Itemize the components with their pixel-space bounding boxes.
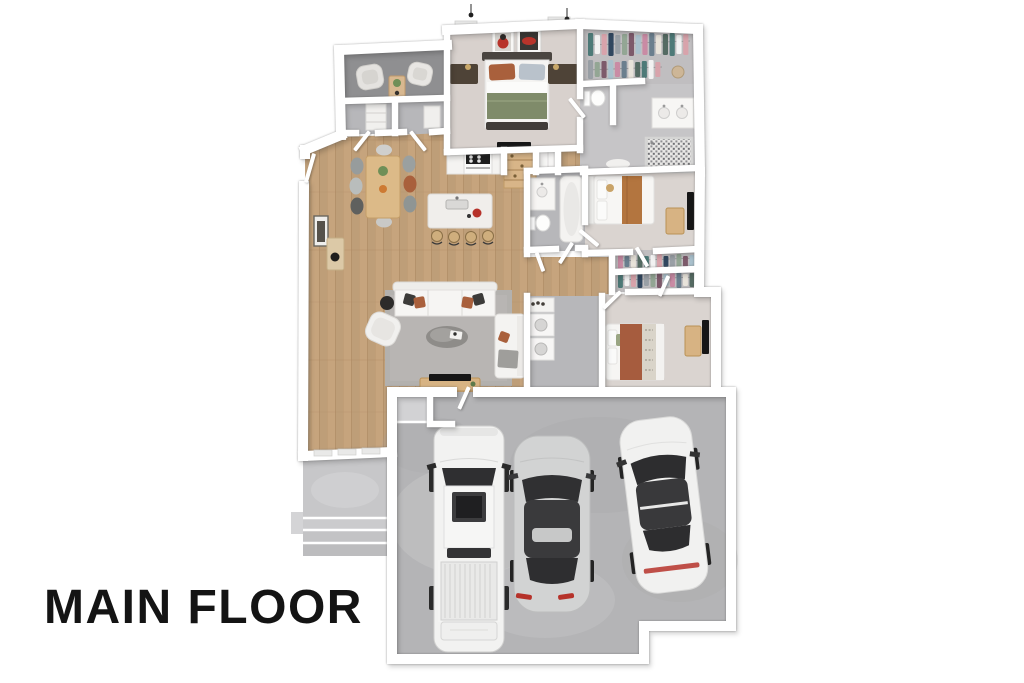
- nightstand: [450, 64, 478, 84]
- wall: [341, 131, 447, 133]
- rust-duvet: [620, 324, 642, 380]
- side-stoop: [291, 512, 303, 534]
- bar-stool: [449, 232, 460, 243]
- plant-centerpiece: [378, 166, 388, 176]
- pillow: [519, 64, 546, 81]
- toilet: [584, 90, 605, 106]
- gray-throw: [497, 349, 518, 368]
- fruit-bowl: [379, 185, 387, 193]
- basket: [672, 66, 684, 78]
- dresser: [666, 208, 684, 234]
- red-bowl: [473, 209, 482, 218]
- dining-chair: [403, 156, 416, 173]
- headboard: [588, 176, 594, 224]
- rear-window: [526, 558, 578, 584]
- throw-pillow: [413, 296, 426, 309]
- wall: [580, 24, 698, 29]
- dresser: [685, 326, 701, 356]
- coffee-table: [426, 326, 468, 348]
- pillow: [489, 63, 516, 80]
- lamp: [465, 64, 471, 70]
- window: [314, 450, 332, 456]
- bed-foot: [656, 324, 664, 380]
- island-sink: [446, 200, 468, 209]
- pillow: [597, 201, 607, 220]
- pillow: [608, 330, 617, 346]
- range: [464, 152, 492, 174]
- sectional-sofa: [393, 282, 497, 316]
- silver-sedan: [508, 436, 597, 612]
- camel-blanket: [622, 176, 642, 224]
- faucet: [455, 196, 458, 199]
- closet-storage: [424, 106, 440, 128]
- tv: [429, 374, 471, 381]
- dining-chair: [351, 198, 364, 215]
- bar-stool: [432, 231, 443, 242]
- office-armchair: [355, 63, 385, 91]
- sage-duvet: [487, 93, 547, 119]
- kitchen-island: [428, 194, 492, 228]
- floor-title: MAIN FLOOR: [44, 584, 363, 632]
- throw-pillow: [461, 296, 474, 309]
- wall-tv: [702, 320, 709, 354]
- dining-chair: [351, 158, 364, 175]
- pillow: [597, 180, 607, 199]
- wall: [303, 186, 304, 456]
- bedroom3-bed: [600, 324, 664, 380]
- wall: [340, 45, 447, 50]
- plant: [393, 79, 401, 87]
- living-room: [362, 282, 525, 391]
- lamp: [553, 64, 559, 70]
- porch-steps: [291, 512, 391, 556]
- pickup-truck: [427, 426, 512, 652]
- closet-shelf-unit: [366, 104, 386, 130]
- rear-window: [447, 548, 491, 558]
- porch-mottle: [311, 472, 379, 508]
- toilet: [529, 215, 550, 231]
- round-side-table: [380, 296, 394, 310]
- floor-plan-page: MAIN FLOOR: [0, 0, 1024, 683]
- garage-entry-step: [394, 394, 428, 422]
- decor-item: [395, 91, 399, 95]
- wall-tv: [687, 192, 694, 230]
- wall: [614, 269, 698, 272]
- decor: [606, 184, 614, 192]
- dining-chair: [350, 178, 363, 195]
- wall: [583, 168, 698, 172]
- wall: [628, 291, 716, 292]
- shower-drain: [650, 141, 653, 144]
- vase: [331, 253, 340, 262]
- master-bed: [482, 52, 552, 130]
- sheet-fold: [487, 82, 547, 93]
- bed-frame-foot: [486, 122, 548, 130]
- window: [338, 449, 356, 455]
- roof-panel: [532, 528, 572, 542]
- pillow: [608, 348, 617, 364]
- sink: [677, 108, 688, 119]
- double-vanity: [652, 98, 694, 128]
- truck-bed: [441, 562, 497, 620]
- wall: [339, 50, 341, 135]
- windshield: [442, 468, 496, 486]
- tailgate: [441, 622, 497, 640]
- clothes-rack: [588, 33, 688, 56]
- patterned-runner: [642, 324, 656, 380]
- wall: [527, 248, 585, 250]
- pendant-light: [469, 13, 474, 18]
- chaise-loveseat: [495, 314, 525, 378]
- bar-stool: [466, 232, 477, 243]
- sink: [659, 108, 670, 119]
- dining-chair: [376, 145, 392, 156]
- wall-art-cat: [492, 30, 514, 54]
- window: [362, 448, 380, 454]
- wall: [699, 172, 700, 292]
- wall: [698, 29, 700, 172]
- bar-stool: [483, 231, 494, 242]
- plant: [471, 382, 476, 387]
- windshield: [522, 475, 582, 502]
- wall: [447, 24, 580, 30]
- vanity: [529, 178, 555, 210]
- dining-chair: [404, 176, 417, 193]
- wall-art-fish: [517, 29, 541, 53]
- laundry-room: [528, 298, 554, 360]
- dining-chair: [404, 196, 417, 213]
- nightstand: [548, 64, 578, 84]
- clothes-rack: [588, 60, 660, 79]
- bedroom2-bed: [588, 176, 654, 224]
- sink: [537, 187, 547, 197]
